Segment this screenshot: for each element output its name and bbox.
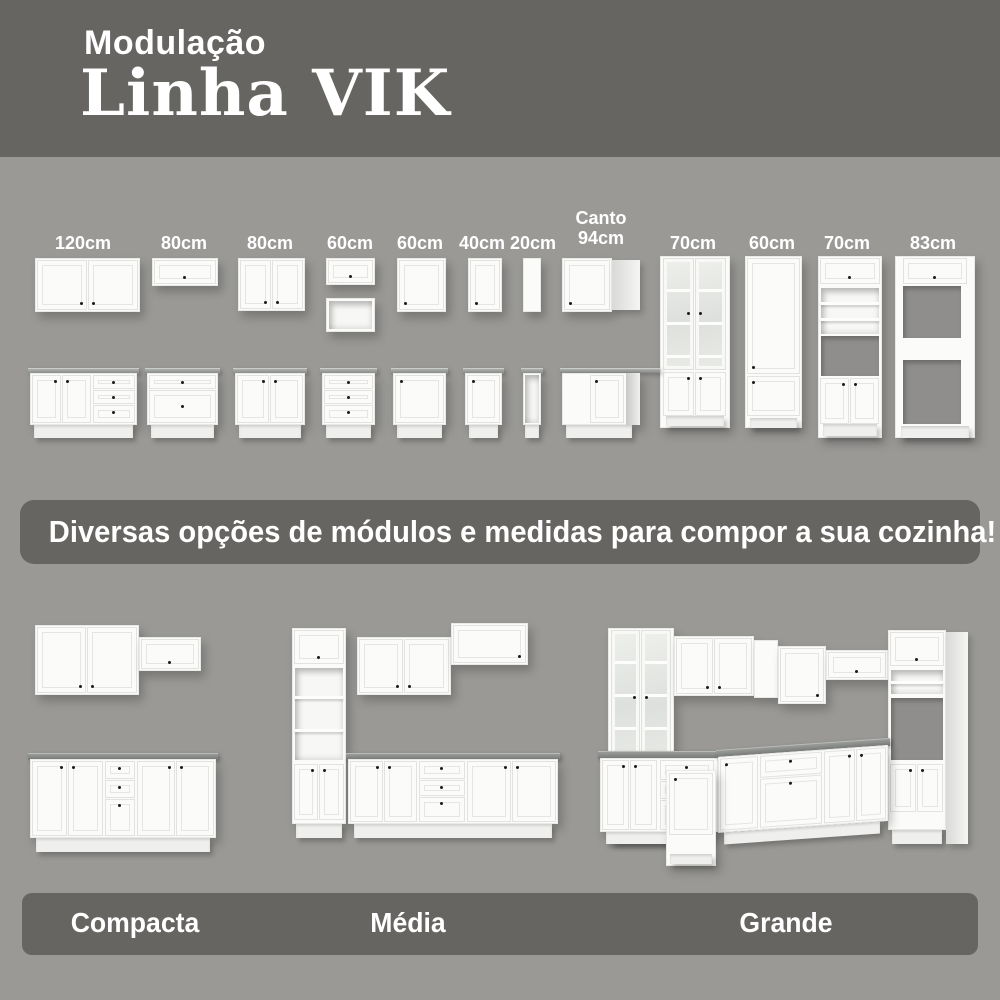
- cabinet-door: [890, 764, 916, 812]
- cabinet-door: [32, 761, 67, 836]
- appliance-cavity: [903, 360, 961, 424]
- compacta-wall-flip-cabinet: [139, 637, 201, 671]
- tall-cabinet-83cm-fridge-frame: [895, 256, 975, 438]
- cabinet-door: [88, 260, 138, 310]
- cabinet-door: [62, 375, 91, 423]
- cabinet-door: [467, 375, 500, 423]
- cabinet-door: [240, 260, 271, 309]
- cabinet-door: [747, 376, 800, 416]
- cabinet-door: [350, 761, 383, 822]
- drawer: [324, 405, 373, 423]
- cabinet-door: [272, 260, 303, 309]
- appliance-cavity: [821, 336, 879, 376]
- cabinet-door: [470, 260, 500, 310]
- glass-door: [663, 258, 694, 370]
- appliance-cavity: [891, 698, 943, 760]
- cabinet-door: [294, 764, 318, 820]
- shelf: [891, 681, 943, 684]
- size-label-70cm-b: 70cm: [824, 233, 870, 253]
- drawer: [105, 761, 135, 779]
- open-niche: [821, 288, 879, 334]
- open-niche: [295, 668, 343, 760]
- glass-door: [611, 630, 640, 768]
- size-label-40cm: 40cm: [459, 233, 505, 253]
- page-title: Linha VIK: [80, 56, 450, 131]
- size-label-canto: Canto94cm: [576, 208, 627, 248]
- cabinet-door: [399, 260, 444, 310]
- kitchen-label-grande: Grande: [739, 907, 832, 939]
- size-label-60cm-a: 60cm: [327, 233, 373, 253]
- drawer: [149, 375, 216, 389]
- cabinet-door: [720, 756, 758, 831]
- plinth: [326, 425, 371, 438]
- cabinet-door: [820, 378, 849, 424]
- kitchen-label-media: Média: [370, 907, 445, 939]
- wall-cabinet-120cm: [35, 258, 140, 312]
- plinth: [36, 838, 210, 852]
- drawer: [760, 752, 822, 778]
- base-cabinet-120cm: [30, 373, 137, 425]
- plinth: [901, 426, 969, 438]
- cabinet-door: [780, 648, 824, 702]
- base-cabinet-40cm: [465, 373, 502, 425]
- base-cabinet-80cm-drawer-door: [147, 373, 218, 425]
- plinth: [296, 824, 342, 838]
- cabinet-door: [760, 775, 822, 828]
- grande-base-right: [718, 745, 888, 833]
- grande-wall-cabinet: [674, 636, 754, 696]
- wall-shelf-20cm: [523, 258, 541, 312]
- open-niche: [329, 301, 372, 329]
- tower-side-panel: [946, 632, 968, 844]
- drawer: [105, 780, 135, 798]
- cabinet-door: [68, 761, 103, 836]
- wall-cabinet-40cm: [468, 258, 502, 312]
- cabinet-door: [37, 627, 86, 693]
- drawer: [93, 390, 135, 404]
- grande-tall-tower: [888, 630, 946, 830]
- cabinet-door: [820, 258, 880, 284]
- size-label-canto-line1: Canto: [576, 208, 627, 228]
- cabinet-door: [270, 375, 303, 423]
- cabinet-door: [453, 625, 526, 663]
- plinth: [823, 424, 877, 436]
- size-label-80cm-b: 80cm: [247, 233, 293, 253]
- cabinet-door: [141, 639, 199, 669]
- cabinet-door: [395, 375, 444, 423]
- banner: Diversas opções de módulos e medidas par…: [20, 500, 980, 564]
- drawer: [93, 405, 135, 423]
- cabinet-door: [890, 632, 944, 666]
- base-cabinet-60cm-drawers: [322, 373, 375, 425]
- cabinet-door: [384, 761, 417, 822]
- plinth: [666, 416, 724, 426]
- cabinet-door: [149, 390, 216, 423]
- cabinet-door: [747, 258, 800, 374]
- wall-cabinet-corner-94cm: [562, 258, 612, 312]
- wall-cabinet-80cm-flip: [152, 258, 218, 286]
- base-cabinet-80cm: [235, 373, 305, 425]
- corner-side-panel: [612, 260, 640, 310]
- drawer: [324, 390, 373, 404]
- wall-cabinet-80cm: [238, 258, 305, 311]
- plinth: [670, 854, 712, 864]
- kitchen-label-compacta: Compacta: [71, 907, 200, 939]
- drawer: [419, 761, 465, 779]
- cabinet-door: [602, 760, 629, 830]
- grande-wall-cabinet-corner: [778, 646, 826, 704]
- compacta-wall-cabinet: [35, 625, 139, 695]
- plinth: [397, 425, 442, 438]
- drawer: [324, 375, 373, 389]
- cabinet-door: [87, 627, 137, 693]
- cabinet-door: [564, 260, 610, 310]
- size-label-80cm-a: 80cm: [161, 233, 207, 253]
- size-label-120cm: 120cm: [55, 233, 111, 253]
- cabinet-door: [512, 761, 556, 822]
- drawer: [93, 375, 135, 389]
- size-label-70cm-a: 70cm: [670, 233, 716, 253]
- media-wall-flip-cabinet: [451, 623, 528, 665]
- drawer: [419, 797, 465, 822]
- cabinet-door: [590, 375, 624, 423]
- cabinet-door: [714, 638, 752, 694]
- cabinet-door: [37, 260, 87, 310]
- size-label-canto-line2: 94cm: [578, 228, 624, 248]
- plinth: [151, 425, 214, 438]
- tall-cabinet-60cm-pantry: [745, 256, 802, 428]
- cabinet-door: [663, 372, 694, 416]
- glass-door: [641, 630, 671, 768]
- size-label-60cm-b: 60cm: [397, 233, 443, 253]
- tall-cabinet-70cm-glass: [660, 256, 730, 428]
- media-wall-cabinet: [357, 637, 451, 695]
- cabinet-door: [669, 773, 713, 835]
- plinth: [892, 830, 942, 844]
- plinth: [239, 425, 301, 438]
- media-base-run: [348, 759, 558, 824]
- cabinet-door: [137, 761, 175, 836]
- base-cabinet-60cm: [393, 373, 446, 425]
- grande-corner-shelf: [754, 640, 778, 698]
- cabinet-door: [359, 639, 403, 693]
- cabinet-door: [856, 747, 886, 821]
- grande-bridge-cabinet: [826, 650, 888, 680]
- open-niche: [525, 375, 539, 423]
- poster: Modulação Linha VIK 120cm 80cm 80cm 60cm…: [0, 0, 1000, 1000]
- cabinet-door: [328, 260, 373, 283]
- shelf: [295, 729, 343, 732]
- base-niche-20cm: [523, 373, 541, 425]
- wall-cabinet-60cm-flip: [326, 258, 375, 285]
- cabinet-door: [676, 638, 713, 694]
- size-label-20cm: 20cm: [510, 233, 556, 253]
- size-label-60cm-c: 60cm: [749, 233, 795, 253]
- plinth: [566, 425, 632, 438]
- plinth: [469, 425, 498, 438]
- open-niche: [891, 670, 943, 694]
- grande-base-right-wing: [716, 738, 890, 850]
- plinth: [525, 425, 539, 438]
- corner-side-panel: [626, 373, 640, 425]
- size-label-83cm: 83cm: [910, 233, 956, 253]
- plinth: [34, 425, 133, 438]
- glass-door: [695, 258, 726, 370]
- cabinet-door: [154, 260, 216, 284]
- base-cabinet-corner-94cm: [562, 373, 640, 425]
- cabinet-door: [319, 764, 344, 820]
- cabinet-door: [32, 375, 61, 423]
- shelf: [295, 696, 343, 699]
- drawer: [419, 780, 465, 796]
- appliance-cavity: [903, 286, 961, 338]
- compacta-base-run: [30, 759, 216, 838]
- cabinet-door: [176, 761, 214, 836]
- cabinet-door: [404, 639, 449, 693]
- shelf: [821, 302, 879, 305]
- cabinet-door: [850, 378, 879, 424]
- wall-niche-60cm: [326, 298, 375, 332]
- plinth: [354, 824, 552, 838]
- grande-corner-base: [666, 770, 716, 866]
- wall-cabinet-60cm: [397, 258, 446, 312]
- cabinet-door: [695, 372, 726, 416]
- header: Modulação Linha VIK: [0, 0, 1000, 157]
- cabinet-door: [824, 749, 855, 823]
- cabinet-door: [903, 258, 967, 284]
- tall-cabinet-70cm-tower: [818, 256, 882, 438]
- cabinet-door: [917, 764, 943, 812]
- shelf: [821, 318, 879, 321]
- drawer: [105, 799, 135, 836]
- cabinet-door: [467, 761, 511, 822]
- cabinet-door: [237, 375, 269, 423]
- cabinet-door: [630, 760, 657, 830]
- cabinet-door: [828, 652, 886, 678]
- banner-text: Diversas opções de módulos e medidas par…: [49, 500, 951, 564]
- footer-band: Compacta Média Grande: [22, 893, 978, 955]
- plinth: [750, 418, 797, 428]
- media-tall-tower: [292, 628, 346, 824]
- cabinet-door: [294, 630, 344, 664]
